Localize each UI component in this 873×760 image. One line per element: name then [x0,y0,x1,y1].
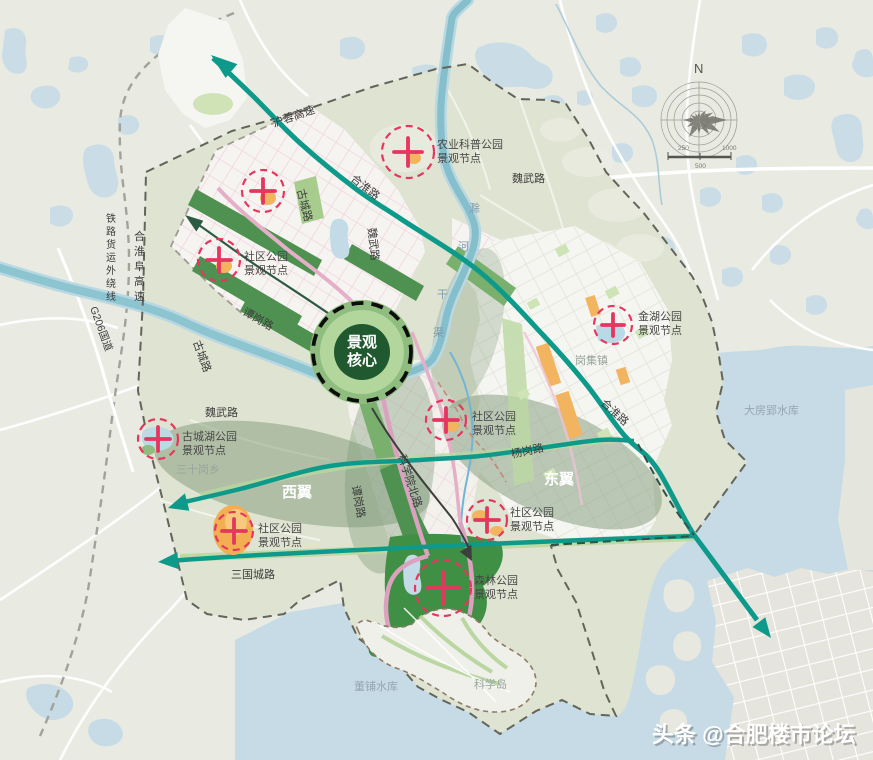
svg-text:500: 500 [695,163,706,170]
svg-text:景观节点: 景观节点 [244,264,288,277]
svg-text:董铺水库: 董铺水库 [354,680,398,693]
svg-text:魏武路: 魏武路 [205,405,238,419]
svg-text:景观节点: 景观节点 [638,324,682,337]
svg-text:1000: 1000 [722,145,737,152]
svg-text:景观节点: 景观节点 [474,588,518,601]
svg-text:三国城路: 三国城路 [231,568,275,581]
svg-text:东翼: 东翼 [544,470,574,488]
svg-text:景观: 景观 [347,333,377,351]
svg-text:渠: 渠 [433,326,444,339]
svg-text:速: 速 [134,290,145,303]
svg-text:头条 @合肥楼市论坛: 头条 @合肥楼市论坛 [652,722,856,747]
svg-text:森林公园: 森林公园 [474,573,518,587]
svg-text:古城湖公园: 古城湖公园 [182,430,237,443]
svg-text:运: 运 [106,252,116,264]
svg-text:河: 河 [458,240,469,253]
svg-text:三十岗乡: 三十岗乡 [176,462,220,476]
svg-text:铁: 铁 [106,212,116,225]
svg-text:社区公园: 社区公园 [244,249,288,263]
svg-text:绕: 绕 [106,277,116,290]
svg-text:合: 合 [134,229,145,243]
svg-text:阜: 阜 [134,260,145,273]
svg-text:高: 高 [134,274,145,288]
svg-text:N: N [694,61,703,76]
svg-text:社区公园: 社区公园 [472,409,516,423]
svg-text:农业科普公园: 农业科普公园 [437,137,503,151]
svg-text:干: 干 [437,289,448,301]
svg-text:路: 路 [106,225,116,238]
svg-text:货: 货 [106,238,116,251]
svg-text:大房郢水库: 大房郢水库 [744,403,799,417]
svg-text:岗集镇: 岗集镇 [575,353,608,367]
svg-text:景观节点: 景观节点 [258,536,302,549]
svg-text:淮: 淮 [134,245,145,258]
svg-text:外: 外 [106,265,116,277]
svg-text:社区公园: 社区公园 [258,521,302,535]
svg-text:社区公园: 社区公园 [510,505,554,519]
svg-text:科学岛: 科学岛 [474,677,507,691]
svg-text:魏武路: 魏武路 [512,171,545,185]
svg-text:滁: 滁 [469,201,480,215]
svg-text:景观节点: 景观节点 [472,424,516,437]
svg-text:250: 250 [678,145,689,152]
svg-text:金湖公园: 金湖公园 [638,309,682,323]
svg-text:景观节点: 景观节点 [437,152,481,165]
svg-text:景观节点: 景观节点 [510,520,554,533]
svg-text:景观节点: 景观节点 [182,444,226,457]
svg-text:西翼: 西翼 [282,484,312,501]
svg-text:核心: 核心 [347,351,377,369]
svg-text:线: 线 [106,290,116,303]
